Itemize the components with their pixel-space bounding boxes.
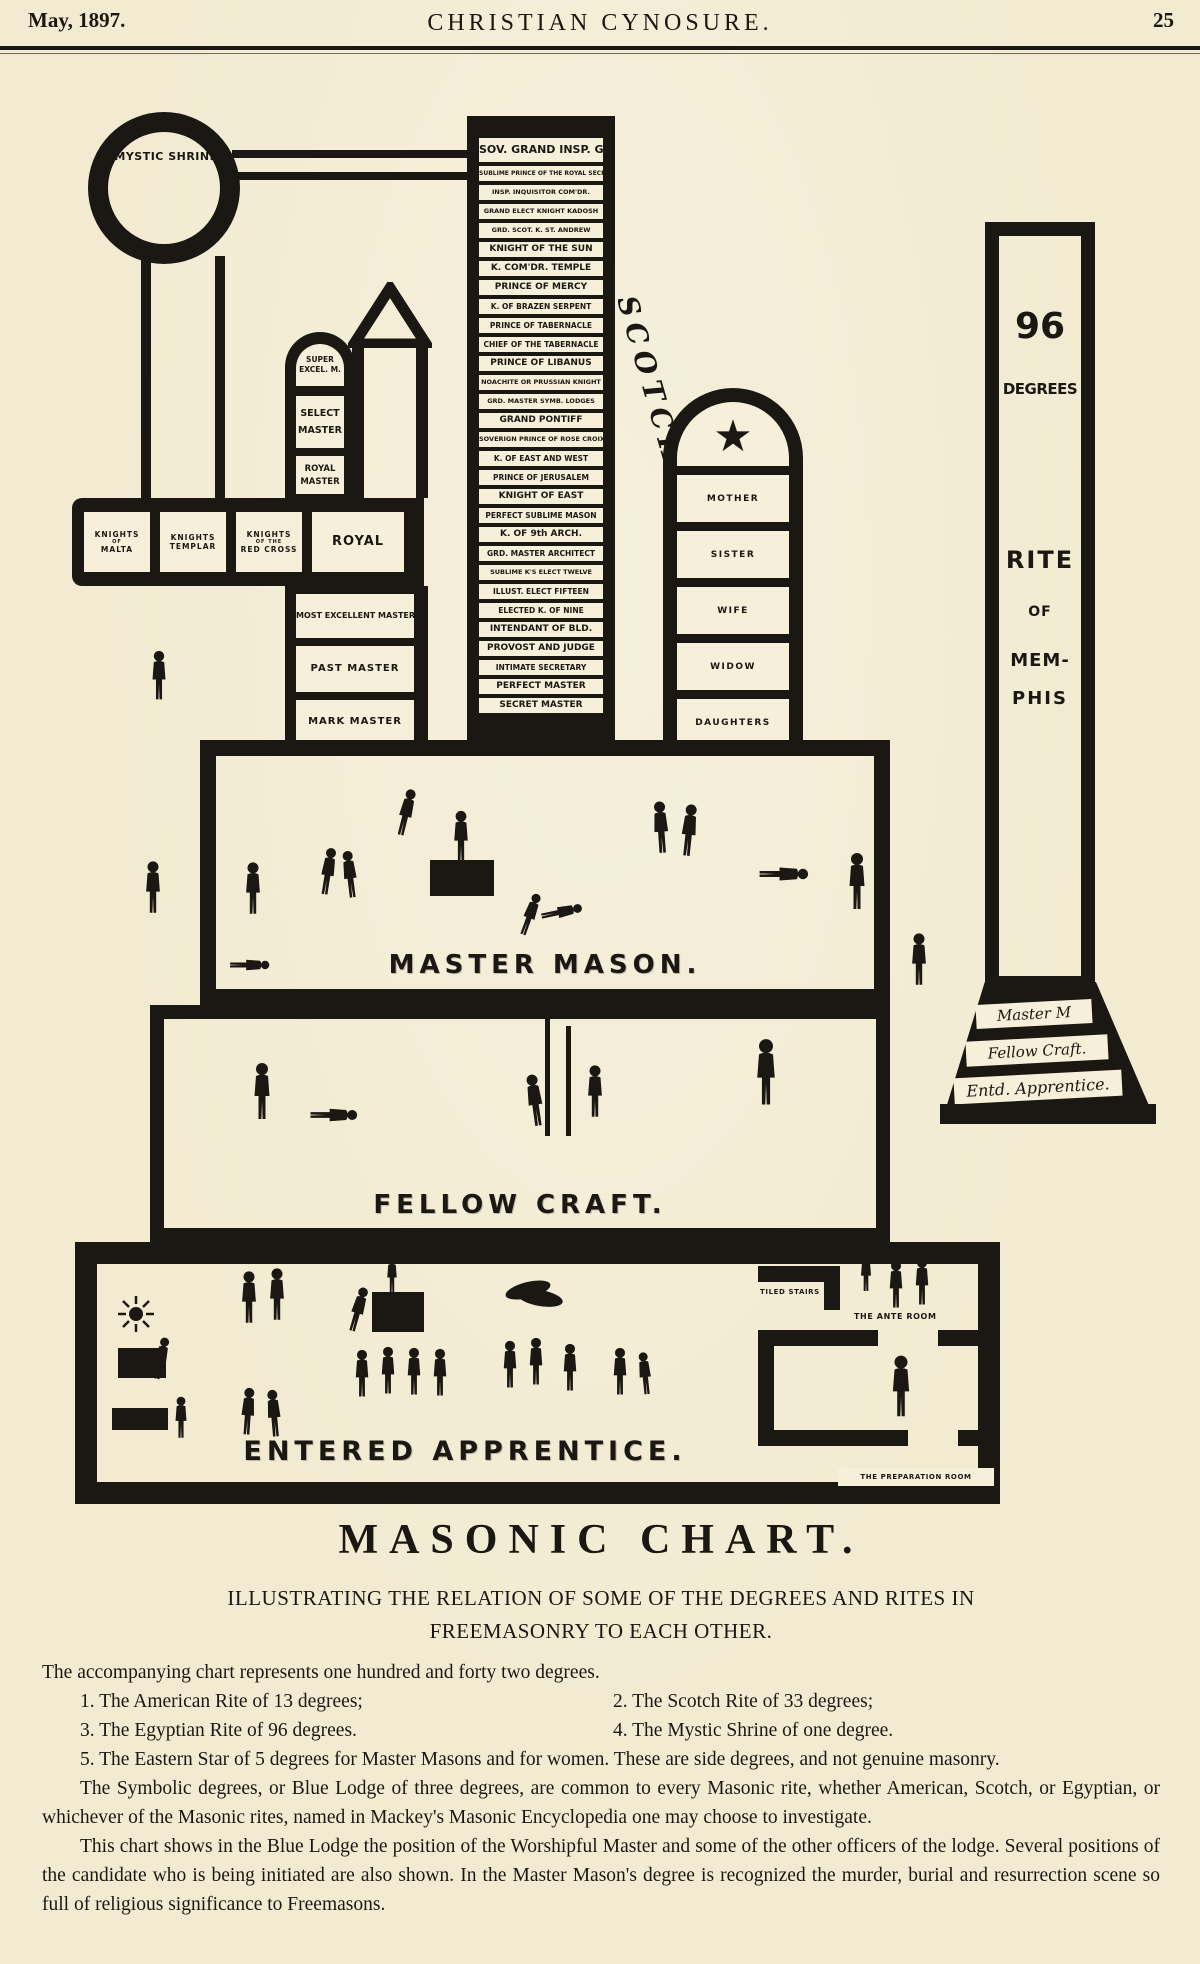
eastern-star-label: DAUGHTERS (677, 690, 789, 746)
degree-label: KNIGHT OF THE SUN (479, 242, 603, 257)
memphis-line: MEM- (999, 650, 1081, 671)
knights-line: KNIGHTS (160, 533, 226, 542)
rite-list-row: 1. The American Rite of 13 degrees; 2. T… (42, 1687, 1160, 1716)
figure-illustration (908, 932, 930, 988)
knights-line: MALTA (84, 545, 150, 554)
ladder-chimney (352, 345, 428, 498)
degree-label: GRD. MASTER SYMB. LODGES (479, 394, 603, 409)
rite-list-item: 2. The Scotch Rite of 33 degrees; (601, 1687, 1160, 1716)
rite-list-row: 3. The Egyptian Rite of 96 degrees. 4. T… (42, 1716, 1160, 1745)
mark-master-box: MARK MASTER (296, 700, 414, 744)
eastern-star-label: SISTER (677, 522, 789, 578)
pedestal-base (940, 1104, 1156, 1124)
mystic-shrine-label: MYSTIC SHRINE (92, 150, 240, 163)
connector-line (215, 256, 225, 506)
figure-illustration (384, 1256, 400, 1294)
figure-illustration (378, 1340, 398, 1402)
past-master-box: PAST MASTER (296, 646, 414, 692)
preparation-room-label: THE PREPARATION ROOM (838, 1468, 994, 1486)
connector-line (232, 150, 472, 158)
bench-illustration (112, 1408, 168, 1430)
degree-label: GRD. MASTER ARCHITECT (479, 546, 603, 561)
degree-label: SOV. GRAND INSP. GEN. (479, 138, 603, 162)
eastern-star-label: WIDOW (677, 634, 789, 690)
degree-label: INSP. INQUISITOR COM'DR. (479, 185, 603, 200)
figure-illustration (648, 797, 674, 858)
interior-wall (938, 1330, 1000, 1346)
degree-label: K. COM'DR. TEMPLE (479, 261, 603, 276)
degree-line: MASTER (296, 477, 344, 487)
pillar-illustration (566, 1026, 571, 1136)
degree-label: SECRET MASTER (479, 698, 603, 713)
degree-line: ROYAL (296, 464, 344, 474)
degree-label: K. OF BRAZEN SERPENT (479, 299, 603, 314)
master-mason-label: MASTER MASON. (200, 950, 890, 980)
knights-templar-box: KNIGHTS TEMPLAR (160, 512, 226, 572)
tiled-stairs-label: TILED STAIRS (760, 1288, 820, 1296)
degree-label: ILLUST. ELECT FIFTEEN (479, 584, 603, 599)
connector-line (232, 172, 472, 180)
degree-label: K. OF 9th ARCH. (479, 527, 603, 542)
memphis-line: OF (999, 604, 1081, 620)
knights-line: RED CROSS (236, 545, 302, 554)
masthead-rule-thin (0, 53, 1200, 54)
masthead-title: CHRISTIAN CYNOSURE. (0, 10, 1200, 37)
figure-illustration (142, 860, 164, 916)
rite-list-item: 1. The American Rite of 13 degrees; (42, 1687, 601, 1716)
degree-label: ELECTED K. OF NINE (479, 603, 603, 618)
figure-illustration (148, 650, 170, 702)
memphis-degree-count: 96 (999, 306, 1081, 347)
figure-illustration (858, 1248, 874, 1298)
figure-illustration (242, 860, 264, 918)
article-paragraph: The Symbolic degrees, or Blue Lodge of t… (42, 1774, 1160, 1832)
interior-wall (758, 1330, 774, 1432)
knights-red-cross-box: KNIGHTS OF THE RED CROSS (236, 512, 302, 572)
figure-illustration (236, 1383, 260, 1440)
masthead-page-number: 25 (1153, 8, 1174, 33)
altar-illustration (430, 860, 494, 896)
degree-label: CHIEF OF THE TABERNACLE (479, 337, 603, 352)
rite-list-item: 4. The Mystic Shrine of one degree. (601, 1716, 1160, 1745)
figure-illustration (888, 1346, 914, 1428)
figure-illustration (250, 1056, 274, 1128)
degree-line: SUPER (296, 355, 344, 366)
degree-label: PERFECT SUBLIME MASON (479, 508, 603, 523)
article-intro: The accompanying chart represents one hu… (42, 1658, 1160, 1687)
degree-label: KNIGHT OF EAST (479, 489, 603, 504)
figure-illustration (450, 810, 472, 864)
royal-master-box: ROYAL MASTER (296, 456, 344, 494)
star-icon: ★ (677, 402, 789, 466)
article: MASONIC CHART. ILLUSTRATING THE RELATION… (42, 1516, 1160, 1919)
figure-illustration (238, 1262, 260, 1334)
interior-wall (758, 1330, 878, 1346)
figure-illustration (560, 1340, 580, 1396)
degree-label: PRINCE OF MERCY (479, 280, 603, 295)
eastern-star-interior: ★ MOTHERSISTERWIFEWIDOWDAUGHTERS (677, 402, 789, 746)
degree-label: K. OF EAST AND WEST (479, 451, 603, 466)
figure-illustration (886, 1254, 906, 1316)
spire-triangle (348, 282, 432, 348)
connector-line (141, 256, 151, 506)
degree-label: INTIMATE SECRETARY (479, 660, 603, 675)
degree-label: PERFECT MASTER (479, 679, 603, 694)
rite-list-item: 5. The Eastern Star of 5 degrees for Mas… (42, 1745, 1160, 1774)
knights-line: KNIGHTS (84, 530, 150, 539)
knights-of-malta-box: KNIGHTS OF MALTA (84, 512, 150, 572)
eastern-star-label-list: MOTHERSISTERWIFEWIDOWDAUGHTERS (677, 466, 789, 746)
entered-apprentice-label: ENTERED APPRENTICE. (75, 1436, 855, 1467)
royal-arch-box: ROYAL ARCH (312, 512, 404, 572)
degree-label: SOVERIGN PRINCE OF ROSE CROIX (479, 432, 603, 447)
altar-illustration (372, 1292, 424, 1332)
degree-label: NOACHITE OR PRUSSIAN KNIGHT (479, 375, 603, 390)
figure-illustration (912, 1250, 932, 1314)
scanned-page: May, 1897. CHRISTIAN CYNOSURE. 25 MYSTIC… (0, 0, 1200, 1964)
figure-illustration (526, 1332, 546, 1392)
figure-illustration (430, 1344, 450, 1402)
figure-illustration (610, 1344, 630, 1400)
degree-label: GRAND PONTIFF (479, 413, 603, 428)
article-title: MASONIC CHART. (42, 1516, 1160, 1564)
figure-illustration (752, 1022, 780, 1124)
knights-line: TEMPLAR (160, 542, 226, 551)
figure-illustration (757, 863, 809, 885)
super-excellent-master-box: SUPER EXCEL. M. (296, 344, 344, 386)
degree-label: PRINCE OF TABERNACLE (479, 318, 603, 333)
eastern-star-label: MOTHER (677, 466, 789, 522)
degree-line: MASTER (296, 425, 344, 436)
degree-label: SUBLIME K'S ELECT TWELVE (479, 565, 603, 580)
degree-label: SUBLIME PRINCE OF THE ROYAL SECRET (479, 166, 603, 181)
degree-label: PROVOST AND JUDGE (479, 641, 603, 656)
degree-label: PRINCE OF JERUSALEM (479, 470, 603, 485)
figure-illustration (845, 850, 869, 914)
scotch-rite-degree-list: SOV. GRAND INSP. GEN.SUBLIME PRINCE OF T… (479, 138, 603, 713)
degree-label: GRAND ELECT KNIGHT KADOSH (479, 204, 603, 219)
degree-label: PRINCE OF LIBANUS (479, 356, 603, 371)
memphis-line: RITE (999, 546, 1081, 574)
rite-list-item: 3. The Egyptian Rite of 96 degrees. (42, 1716, 601, 1745)
degree-line: SELECT (296, 408, 344, 419)
figure-illustration (308, 1104, 358, 1126)
figure-illustration (228, 956, 270, 974)
figure-illustration (584, 1060, 606, 1124)
article-body: The accompanying chart represents one hu… (42, 1658, 1160, 1919)
figure-illustration (404, 1342, 424, 1402)
memphis-degrees-label: DEGREES (999, 380, 1081, 398)
degree-line: EXCEL. M. (296, 365, 344, 376)
figure-illustration (172, 1396, 190, 1440)
interior-wall (958, 1430, 1000, 1446)
knights-line: KNIGHTS (236, 530, 302, 539)
select-master-box: SELECT MASTER (296, 396, 344, 448)
interior-wall (824, 1266, 840, 1310)
fellow-craft-label: FELLOW CRAFT. (150, 1190, 890, 1220)
most-excellent-master-box: MOST EXCELLENT MASTER (296, 594, 414, 638)
mystic-shrine-ring (88, 112, 240, 264)
article-subtitle-line1: ILLUSTRATING THE RELATION OF SOME OF THE… (42, 1582, 1160, 1615)
memphis-line: PHIS (999, 688, 1081, 709)
masthead-rule (0, 46, 1200, 50)
sun-icon (116, 1294, 156, 1334)
figure-illustration (266, 1258, 288, 1332)
eastern-star-label: WIFE (677, 578, 789, 634)
article-paragraph: This chart shows in the Blue Lodge the p… (42, 1832, 1160, 1919)
figure-illustration (352, 1344, 372, 1404)
article-subtitle-line2: FREEMASONRY TO EACH OTHER. (42, 1615, 1160, 1648)
degree-label: INTENDANT OF BLD. (479, 622, 603, 637)
interior-wall (758, 1430, 908, 1446)
figure-illustration (500, 1336, 520, 1394)
degree-label: GRD. SCOT. K. ST. ANDREW (479, 223, 603, 238)
